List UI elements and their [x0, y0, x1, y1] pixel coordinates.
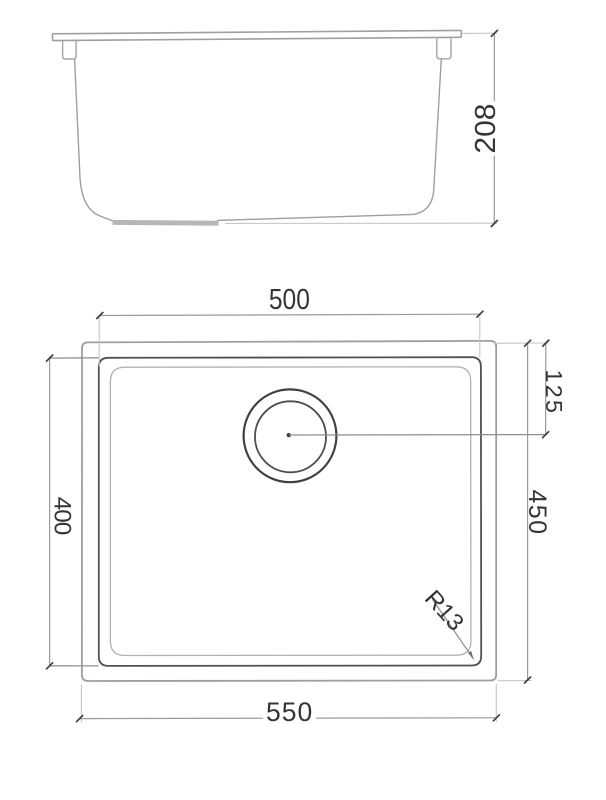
svg-text:R13: R13	[420, 585, 469, 636]
svg-text:450: 450	[523, 490, 551, 535]
svg-text:500: 500	[269, 284, 310, 316]
svg-text:208: 208	[470, 104, 502, 154]
svg-text:125: 125	[541, 370, 567, 414]
svg-text:400: 400	[49, 497, 76, 536]
svg-text:550: 550	[266, 697, 312, 727]
